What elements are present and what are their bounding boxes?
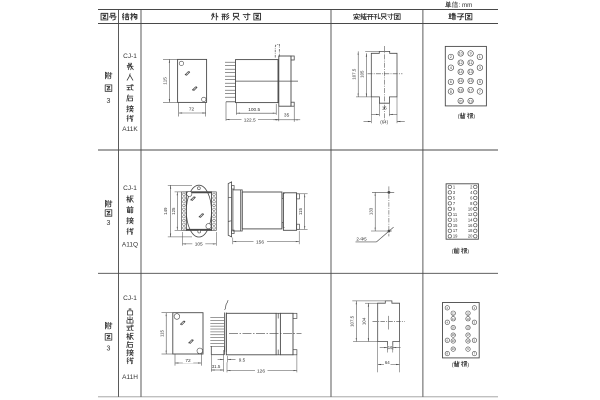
svg-text:3: 3 <box>107 346 111 353</box>
svg-text:13: 13 <box>469 70 473 74</box>
svg-text:156: 156 <box>256 239 264 245</box>
svg-text:CJ-1: CJ-1 <box>123 295 137 302</box>
svg-text:15: 15 <box>467 326 470 330</box>
svg-text:18: 18 <box>459 88 463 92</box>
svg-text:3: 3 <box>107 220 111 227</box>
svg-text:10: 10 <box>468 206 473 211</box>
svg-text:13: 13 <box>453 217 458 222</box>
svg-text:(64): (64) <box>380 119 388 124</box>
svg-text:A11Q: A11Q <box>122 242 138 249</box>
svg-text:(: ( <box>452 249 454 255</box>
svg-text:149: 149 <box>163 207 168 215</box>
svg-text:17: 17 <box>467 333 470 337</box>
svg-text:107.5: 107.5 <box>350 315 355 327</box>
svg-text:122.5: 122.5 <box>244 117 256 123</box>
svg-text:14: 14 <box>459 70 463 74</box>
svg-text:18: 18 <box>452 333 455 337</box>
svg-text:: mm: : mm <box>459 2 473 9</box>
svg-text:126: 126 <box>257 368 265 374</box>
svg-text:7: 7 <box>479 90 481 94</box>
svg-text:): ) <box>473 114 475 120</box>
svg-text:10: 10 <box>459 52 463 56</box>
svg-text:(: ( <box>452 362 454 368</box>
svg-text:5: 5 <box>479 80 481 84</box>
svg-text:16: 16 <box>388 345 393 350</box>
svg-text:13: 13 <box>467 317 470 321</box>
svg-text:2: 2 <box>450 55 452 59</box>
svg-text:8: 8 <box>450 90 452 94</box>
svg-text:15: 15 <box>453 223 458 228</box>
svg-text:(: ( <box>458 114 460 120</box>
svg-text:11: 11 <box>467 311 470 315</box>
svg-text:100.5: 100.5 <box>248 107 260 113</box>
svg-text:11: 11 <box>453 212 458 217</box>
svg-text:9: 9 <box>470 52 472 56</box>
svg-text:20: 20 <box>459 99 463 103</box>
svg-text:17: 17 <box>469 88 473 92</box>
svg-text:115: 115 <box>298 208 303 216</box>
svg-text:A11K: A11K <box>122 126 138 133</box>
svg-text:72: 72 <box>185 358 191 364</box>
svg-text:20: 20 <box>452 339 455 343</box>
svg-text:72: 72 <box>189 107 195 113</box>
svg-text:3: 3 <box>479 66 481 70</box>
svg-text:105: 105 <box>195 242 203 248</box>
svg-text:CJ-1: CJ-1 <box>123 185 137 192</box>
svg-text:): ) <box>467 249 469 255</box>
svg-text:133: 133 <box>369 207 374 215</box>
svg-text:12: 12 <box>452 311 455 315</box>
svg-text:): ) <box>467 362 469 368</box>
svg-text:6: 6 <box>450 80 452 84</box>
svg-text:12: 12 <box>468 212 473 217</box>
svg-text:14: 14 <box>468 217 473 222</box>
svg-text:31.5: 31.5 <box>212 364 221 369</box>
svg-text:2-Φ5: 2-Φ5 <box>356 237 367 242</box>
svg-text:CJ-1: CJ-1 <box>123 53 137 60</box>
svg-text:104: 104 <box>362 317 367 325</box>
svg-text:16: 16 <box>382 105 387 110</box>
svg-text:19: 19 <box>467 339 470 343</box>
svg-text:12: 12 <box>459 61 463 65</box>
svg-text:16: 16 <box>452 326 455 330</box>
svg-text:A11H: A11H <box>122 374 138 381</box>
svg-text:115: 115 <box>159 329 164 337</box>
svg-text:35: 35 <box>284 113 290 119</box>
svg-text:9.5: 9.5 <box>239 357 246 362</box>
svg-text:125: 125 <box>171 207 176 215</box>
svg-text:4: 4 <box>450 66 452 70</box>
svg-text:107.5: 107.5 <box>352 68 357 80</box>
svg-text:11: 11 <box>469 61 473 65</box>
svg-text:19: 19 <box>469 99 473 103</box>
svg-text:15: 15 <box>469 79 473 83</box>
svg-text:19: 19 <box>453 234 458 239</box>
svg-text:20: 20 <box>468 234 473 239</box>
svg-text:1: 1 <box>479 55 481 59</box>
svg-text:3: 3 <box>107 98 111 105</box>
svg-text:18: 18 <box>468 228 473 233</box>
svg-text:16: 16 <box>468 223 473 228</box>
svg-text:64: 64 <box>385 360 390 365</box>
svg-text:14: 14 <box>452 317 455 321</box>
svg-text:10: 10 <box>452 347 455 351</box>
svg-text:105: 105 <box>360 70 365 78</box>
svg-text:17: 17 <box>453 228 458 233</box>
svg-text:115: 115 <box>162 77 168 85</box>
svg-text:16: 16 <box>459 79 463 83</box>
